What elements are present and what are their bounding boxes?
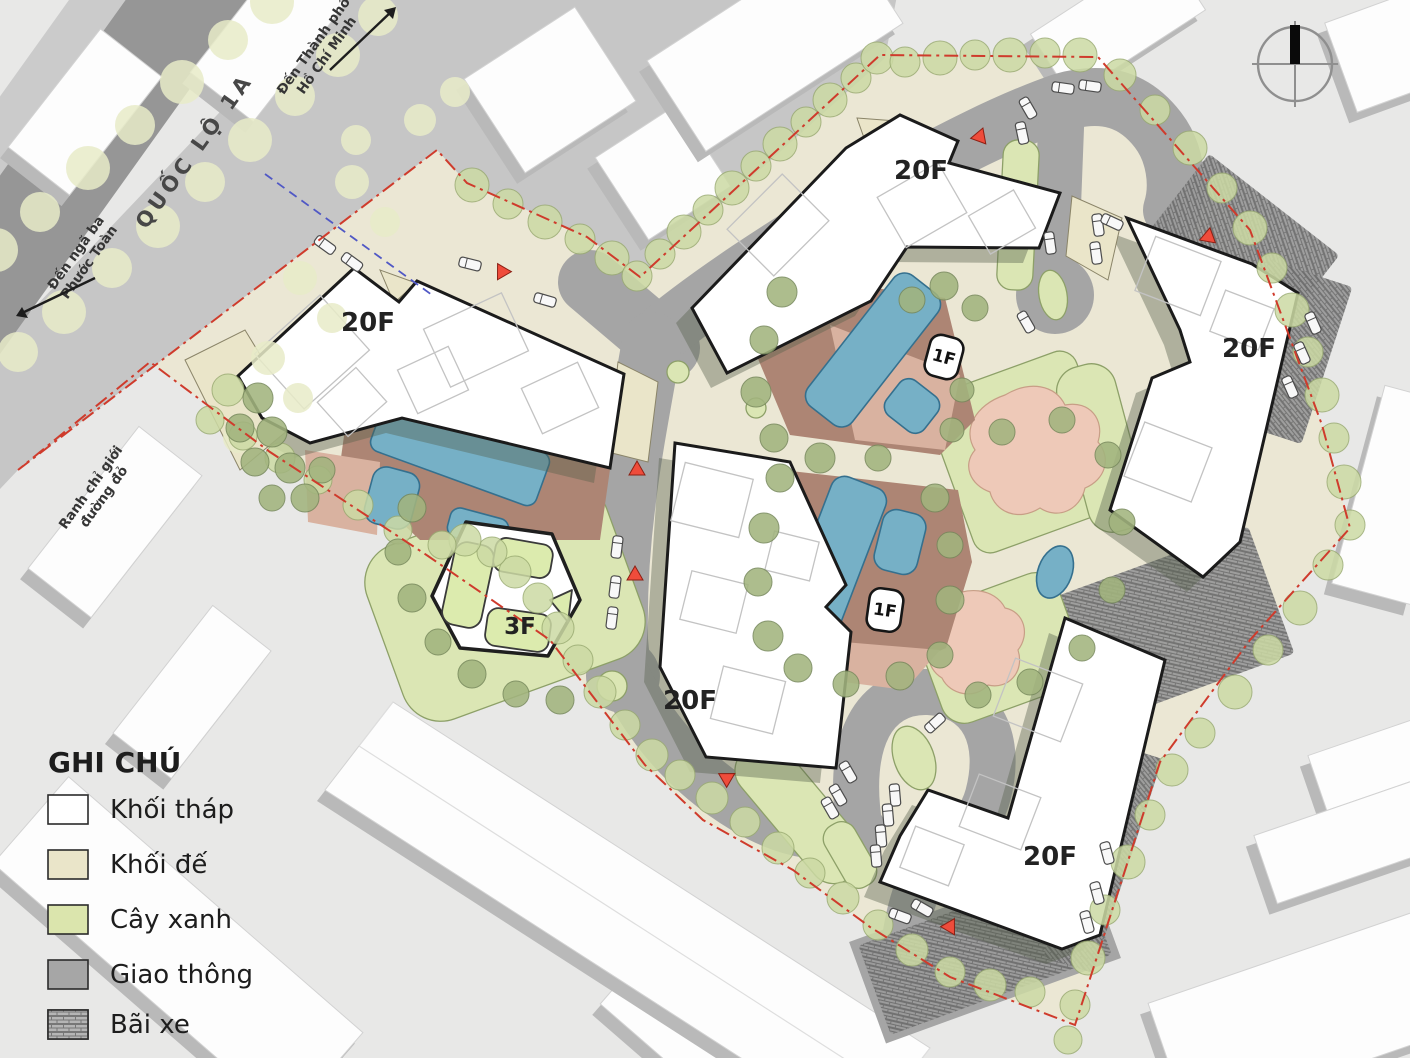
tree-icon [458,660,486,688]
greenery-swatch-icon [48,905,88,934]
tree-icon [1069,635,1095,661]
tower-label-northwest: 20F [341,308,395,338]
legend-item-cay-xanh: Cây xanh [48,905,232,935]
tree-icon [927,642,953,668]
tree-icon [523,583,553,613]
tree-icon [921,484,949,512]
tree-icon [398,584,426,612]
tree-icon [833,671,859,697]
tree-icon [335,165,369,199]
tree-icon [762,832,794,864]
tower-label-north: 20F [894,156,948,186]
tree-icon [212,374,244,406]
car-icon [611,535,624,558]
tower-label-south: 20F [663,686,717,716]
tree-icon [989,419,1015,445]
tree-icon [937,532,963,558]
tree-icon [1207,173,1237,203]
tower-label-southeast: 20F [1023,842,1077,872]
tree-icon [741,377,771,407]
tree-icon [291,484,319,512]
tree-icon [20,192,60,232]
tree-icon [243,383,273,413]
tree-icon [228,118,272,162]
tree-icon [965,682,991,708]
tree-icon [283,261,317,295]
tree-icon [257,417,287,447]
legend-item-bai-xe: Bãi xe [48,1010,190,1040]
tower-label-northeast: 20F [1222,334,1276,364]
tree-icon [930,272,958,300]
tree-icon [767,277,797,307]
car-icon [870,845,882,868]
svg-text:Khối tháp: Khối tháp [110,795,234,825]
tree-icon [1104,59,1136,91]
tree-icon [1015,977,1045,1007]
car-icon [609,575,622,598]
tree-icon [784,654,812,682]
tree-icon [667,215,701,249]
legend-item-khoi-de: Khối đế [48,850,207,880]
tree-icon [865,445,891,471]
tree-icon [398,494,426,522]
parking-swatch-hatch-icon [48,1010,88,1039]
tree-icon [341,125,371,155]
tree-icon [1156,754,1188,786]
car-icon [882,804,894,827]
tree-icon [766,464,794,492]
tree-icon [370,207,400,237]
tree-icon [1111,845,1145,879]
legend-item-giao-thong: Giao thông [48,960,253,990]
legend-item-khoi-thap: Khối tháp [48,795,234,825]
tree-icon [636,739,668,771]
tree-icon [923,41,957,75]
tree-icon [645,239,675,269]
tree-icon [1063,38,1097,72]
tree-icon [425,629,451,655]
tree-icon [693,195,723,225]
tree-icon [763,127,797,161]
tree-icon [744,568,772,596]
tree-icon [275,453,305,483]
svg-text:1F: 1F [872,599,898,622]
tree-icon [115,105,155,145]
tree-icon [936,586,964,614]
tree-icon [805,443,835,473]
tree-icon [503,681,529,707]
tree-icon [66,146,110,190]
tree-icon [750,326,778,354]
tree-icon [741,151,771,181]
tree-icon [546,686,574,714]
svg-text:Giao thông: Giao thông [110,960,253,990]
amenity-label: 3F [504,614,536,640]
tower-swatch-icon [48,795,88,824]
tree-icon [1233,211,1267,245]
tree-icon [259,485,285,511]
tree-icon [730,807,760,837]
tree-icon [528,205,562,239]
legend-title: GHI CHÚ [48,745,181,779]
tree-icon [715,171,749,205]
tree-icon [1099,577,1125,603]
tree-icon [563,645,593,675]
tree-icon [1218,675,1252,709]
tree-icon [196,406,224,434]
tree-icon [404,104,436,136]
tree-icon [1109,509,1135,535]
svg-text:Khối đế: Khối đế [110,850,207,880]
tree-icon [760,424,788,452]
tree-icon [1313,550,1343,580]
tree-icon [1135,800,1165,830]
car-icon [606,606,619,629]
tree-icon [899,287,925,313]
tree-icon [493,189,523,219]
tree-icon [935,957,965,987]
tree-icon [1257,253,1287,283]
tree-icon [665,760,695,790]
tree-icon [1054,1026,1082,1054]
tree-icon [477,537,507,567]
site-plan-canvas: QUỐC LỘ 1A Đến Thành phố Hồ Chí Minh Đến… [0,0,1410,1058]
tree-icon [283,383,313,413]
car-icon [889,784,901,807]
tree-icon [160,60,204,104]
tree-icon [1095,442,1121,468]
svg-text:Bãi xe: Bãi xe [110,1010,190,1040]
tree-icon [890,47,920,77]
tree-icon [962,295,988,321]
svg-text:Cây xanh: Cây xanh [110,905,232,935]
tree-icon [343,490,373,520]
tree-icon [753,621,783,651]
tree-icon [610,710,640,740]
tree-icon [542,612,574,644]
tree-icon [950,378,974,402]
podium-swatch-icon [48,850,88,879]
tree-icon [251,341,285,375]
tree-icon [440,77,470,107]
tree-icon [1049,407,1075,433]
tree-icon [241,448,269,476]
tree-icon [1327,465,1361,499]
site-plan: QUỐC LỘ 1A Đến Thành phố Hồ Chí Minh Đến… [0,0,1410,1058]
pavilion-badge-central: 1F [865,587,905,633]
tree-icon [1030,38,1060,68]
tree-icon [886,662,914,690]
tree-icon [208,20,248,60]
traffic-swatch-icon [48,960,88,989]
tree-icon [1017,669,1043,695]
tree-icon [993,38,1027,72]
tree-icon [696,782,728,814]
car-icon [875,825,887,848]
tree-icon [749,513,779,543]
tree-icon [622,261,652,291]
tree-icon [428,531,456,559]
tree-icon [940,418,964,442]
tree-icon [1253,635,1283,665]
